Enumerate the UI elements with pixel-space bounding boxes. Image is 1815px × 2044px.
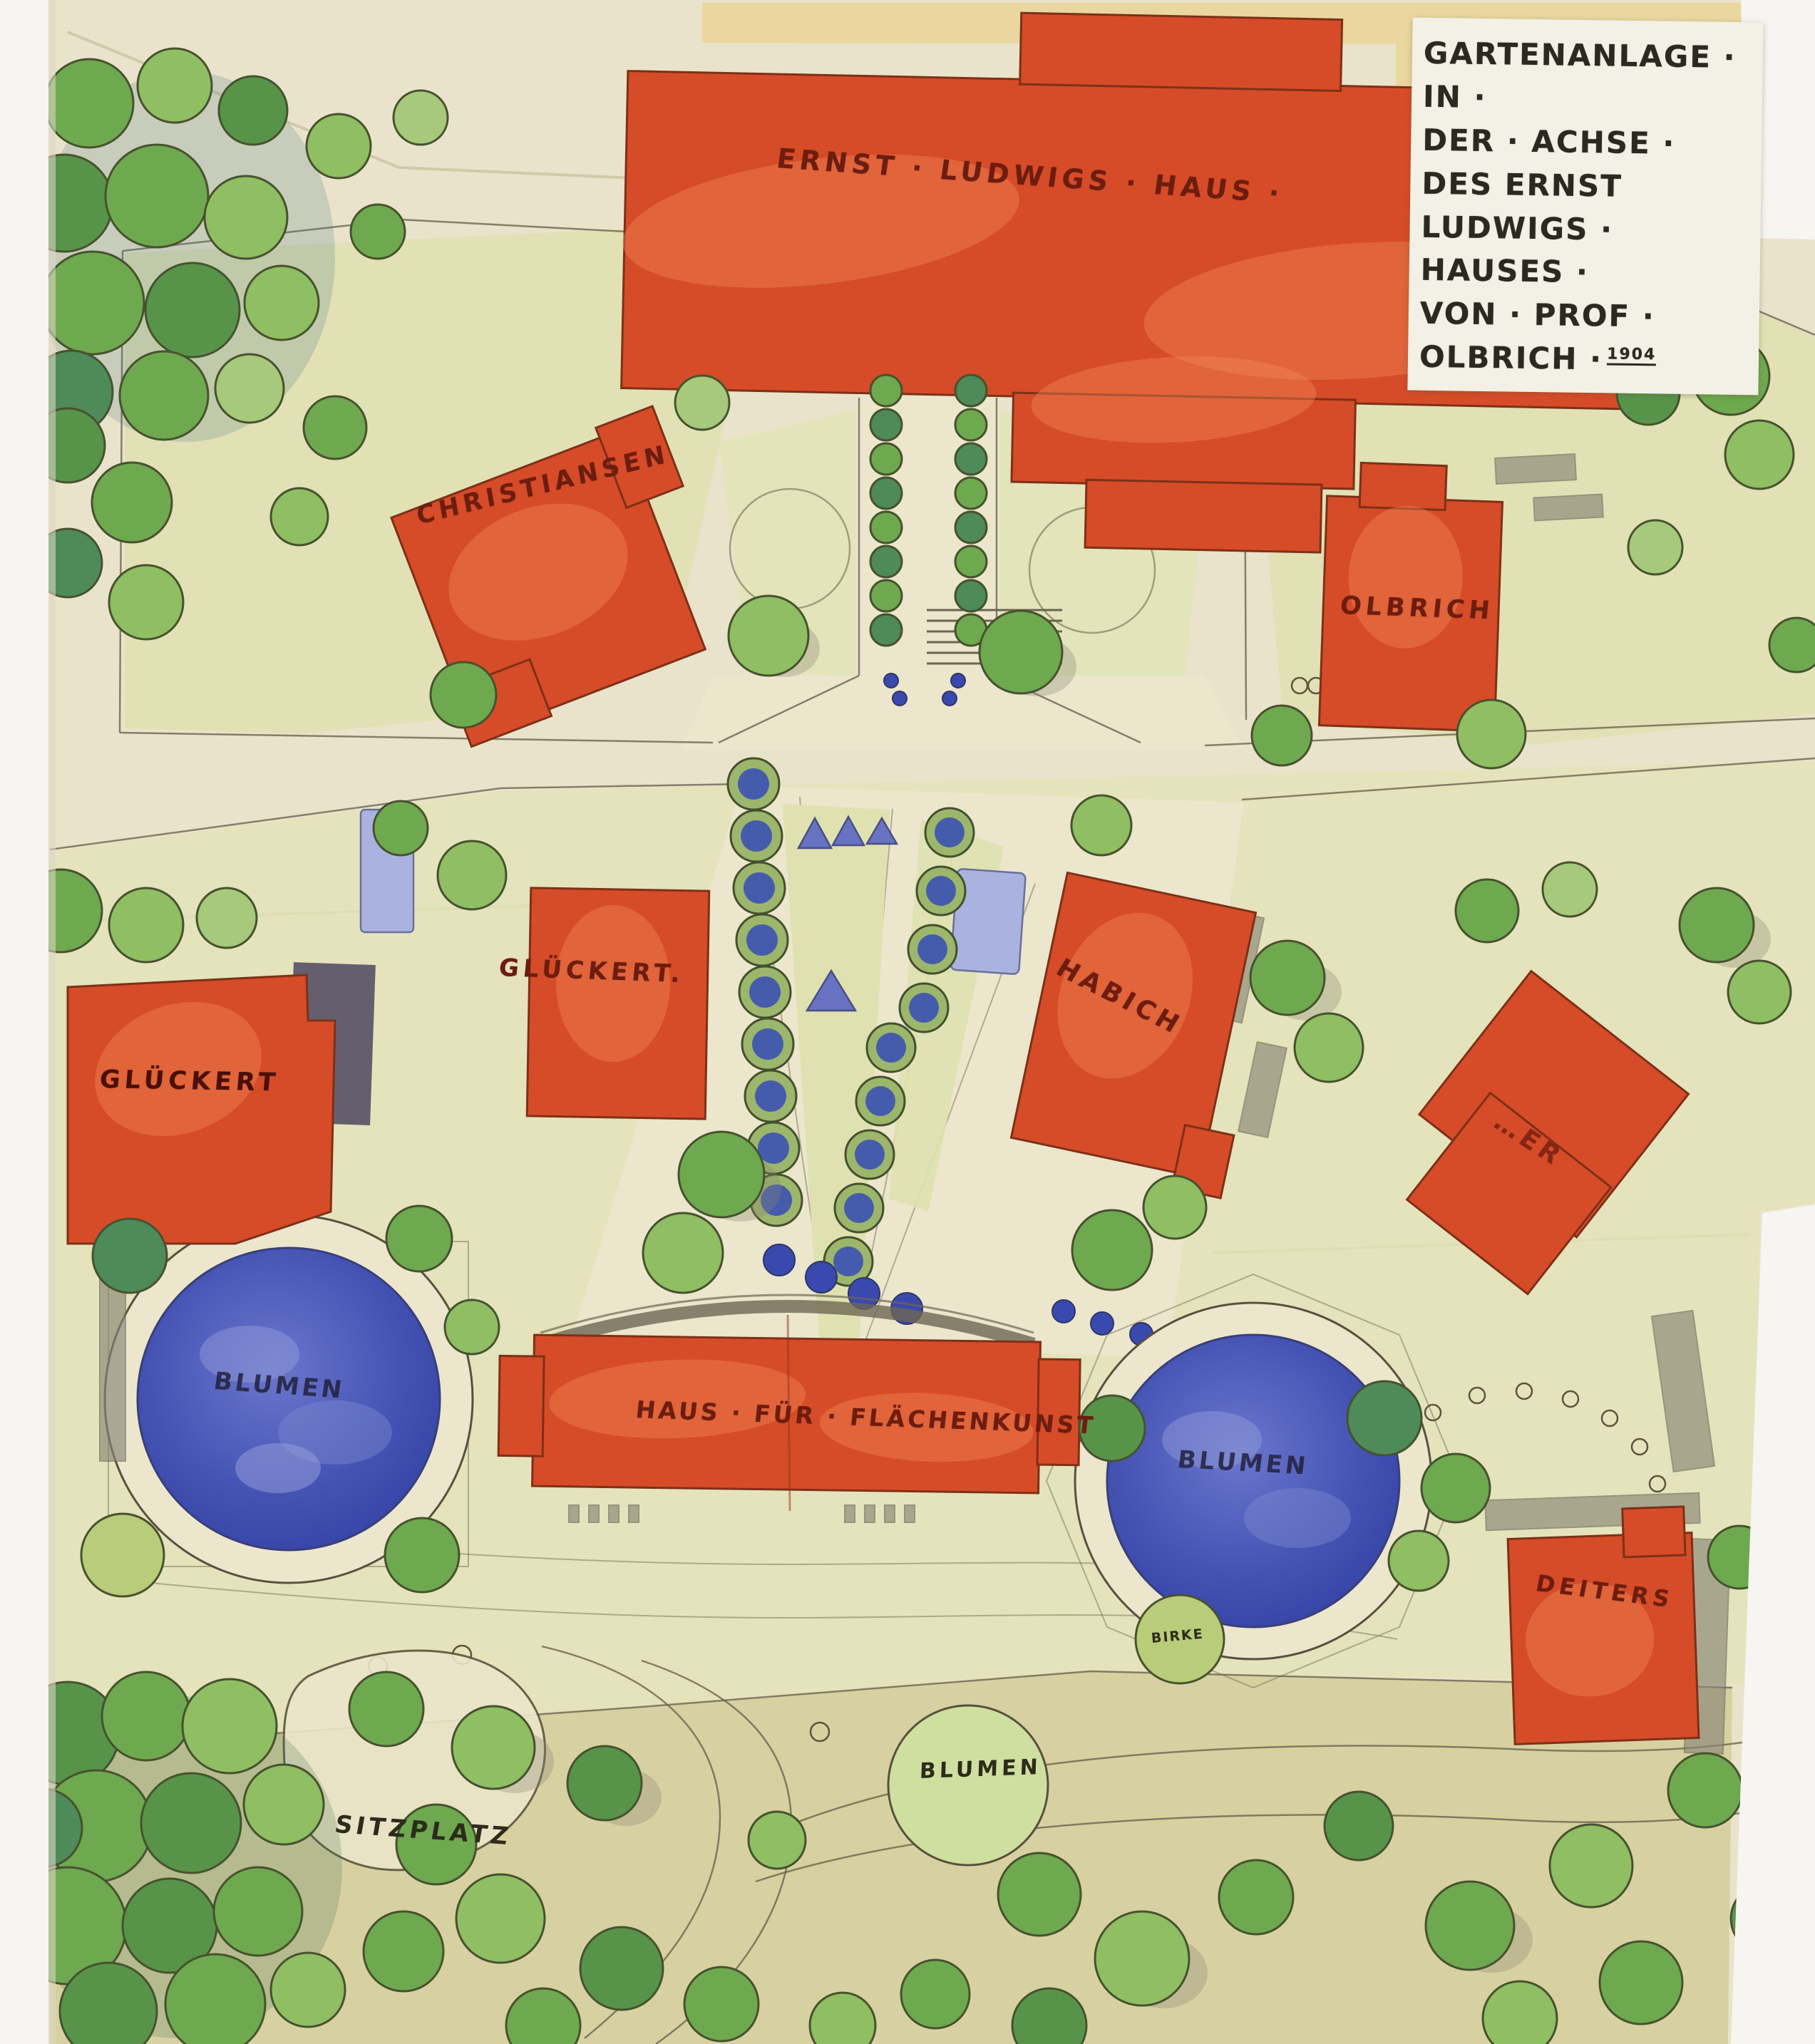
scanned-garden-plan: ERNST · LUDWIGS · HAUS · CHRISTIANSEN OL… — [0, 0, 1815, 2044]
label-glueckert-large: GLÜCKERT — [98, 1065, 281, 1097]
title-line-2: DER · ACHSE · DES ERNST — [1421, 119, 1752, 210]
building-glueckert-large — [68, 962, 376, 1244]
flower-bed-bottom — [888, 1705, 1048, 1865]
building-glueckert-small — [527, 888, 709, 1119]
title-line-3: LUDWIGS · HAUSES · — [1420, 205, 1751, 296]
label-olbrich: OLBRICH — [1339, 592, 1496, 625]
flower-bed-right — [1075, 1303, 1431, 1659]
title-line-1: GARTENANLAGE · IN · — [1423, 32, 1754, 123]
building-deiters — [1507, 1507, 1699, 1745]
title-year: 1904 — [1607, 346, 1657, 366]
label-blumen-bottom: BLUMEN — [919, 1755, 1042, 1784]
title-label: GARTENANLAGE · IN · DER · ACHSE · DES ER… — [1407, 18, 1763, 396]
title-line-4: VON · PROF · OLBRICH ·1904 — [1419, 292, 1750, 383]
